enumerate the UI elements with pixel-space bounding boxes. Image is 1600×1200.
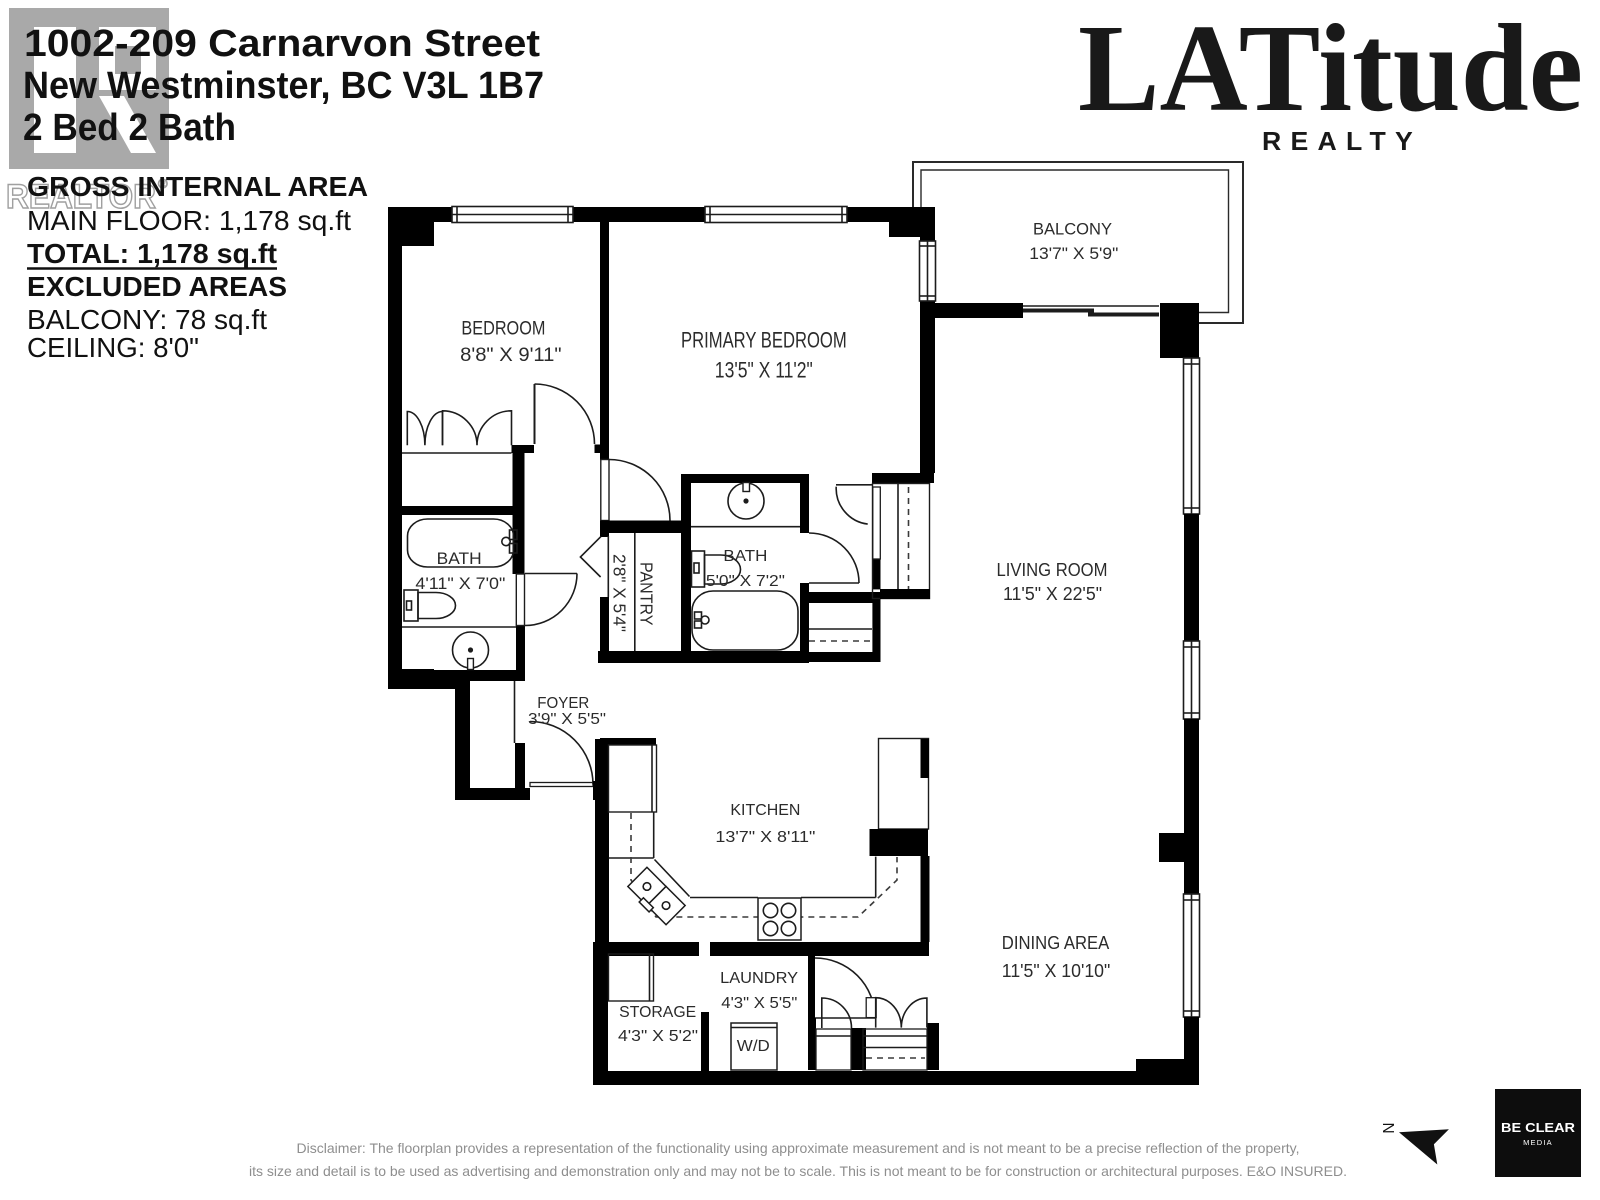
- svg-text:11'5" X 22'5": 11'5" X 22'5": [1003, 584, 1102, 604]
- svg-text:CEILING: 8'0": CEILING: 8'0": [27, 332, 199, 363]
- svg-text:TOTAL: 1,178 sq.ft: TOTAL: 1,178 sq.ft: [27, 238, 277, 269]
- svg-text:BATH: BATH: [723, 548, 767, 565]
- svg-text:LAUNDRY: LAUNDRY: [720, 970, 798, 987]
- svg-text:5'0" X 7'2": 5'0" X 7'2": [706, 573, 785, 590]
- svg-text:MEDIA: MEDIA: [1523, 1138, 1553, 1147]
- svg-text:New Westminster, BC V3L 1B7: New Westminster, BC V3L 1B7: [23, 65, 544, 107]
- svg-text:N: N: [1379, 1123, 1396, 1134]
- svg-text:STORAGE: STORAGE: [619, 1004, 696, 1021]
- svg-text:2 Bed 2 Bath: 2 Bed 2 Bath: [23, 107, 236, 149]
- svg-text:its size and detail is to be u: its size and detail is to be used as adv…: [249, 1164, 1347, 1179]
- svg-text:LIVING ROOM: LIVING ROOM: [997, 560, 1108, 580]
- svg-text:BALCONY: BALCONY: [1033, 221, 1112, 239]
- svg-text:4'3" X 5'5": 4'3" X 5'5": [721, 995, 797, 1012]
- svg-text:Disclaimer: The floorplan prov: Disclaimer: The floorplan provides a rep…: [297, 1141, 1300, 1156]
- svg-text:KITCHEN: KITCHEN: [730, 802, 800, 819]
- svg-text:REALTY: REALTY: [1262, 126, 1422, 156]
- svg-text:W/D: W/D: [737, 1038, 770, 1055]
- svg-text:PANTRY: PANTRY: [637, 562, 657, 626]
- svg-text:13'7" X 5'9": 13'7" X 5'9": [1029, 245, 1118, 263]
- svg-text:DINING AREA: DINING AREA: [1002, 933, 1110, 953]
- svg-text:4'3" X 5'2": 4'3" X 5'2": [618, 1028, 698, 1045]
- svg-text:FOYER: FOYER: [537, 695, 589, 712]
- svg-text:MAIN FLOOR: 1,178 sq.ft: MAIN FLOOR: 1,178 sq.ft: [27, 205, 351, 236]
- svg-text:3'9" X 5'5": 3'9" X 5'5": [528, 711, 606, 728]
- svg-text:BE CLEAR: BE CLEAR: [1501, 1120, 1576, 1135]
- svg-text:4'11" X 7'0": 4'11" X 7'0": [415, 575, 505, 593]
- svg-text:LATitude: LATitude: [1078, 0, 1583, 138]
- svg-text:EXCLUDED AREAS: EXCLUDED AREAS: [27, 271, 287, 302]
- svg-text:BALCONY: 78 sq.ft: BALCONY: 78 sq.ft: [27, 304, 267, 335]
- svg-text:2'8" X 5'4": 2'8" X 5'4": [610, 554, 630, 632]
- svg-text:GROSS INTERNAL AREA: GROSS INTERNAL AREA: [27, 171, 368, 202]
- svg-text:11'5" X 10'10": 11'5" X 10'10": [1002, 961, 1111, 981]
- svg-text:PRIMARY BEDROOM: PRIMARY BEDROOM: [681, 328, 847, 353]
- svg-text:BEDROOM: BEDROOM: [461, 319, 545, 340]
- svg-text:8'8" X 9'11": 8'8" X 9'11": [460, 345, 561, 366]
- svg-text:13'5" X 11'2": 13'5" X 11'2": [715, 358, 813, 383]
- svg-text:13'7" X 8'11": 13'7" X 8'11": [715, 829, 815, 846]
- svg-text:1002-209 Carnarvon Street: 1002-209 Carnarvon Street: [24, 23, 540, 65]
- svg-text:BATH: BATH: [437, 550, 482, 568]
